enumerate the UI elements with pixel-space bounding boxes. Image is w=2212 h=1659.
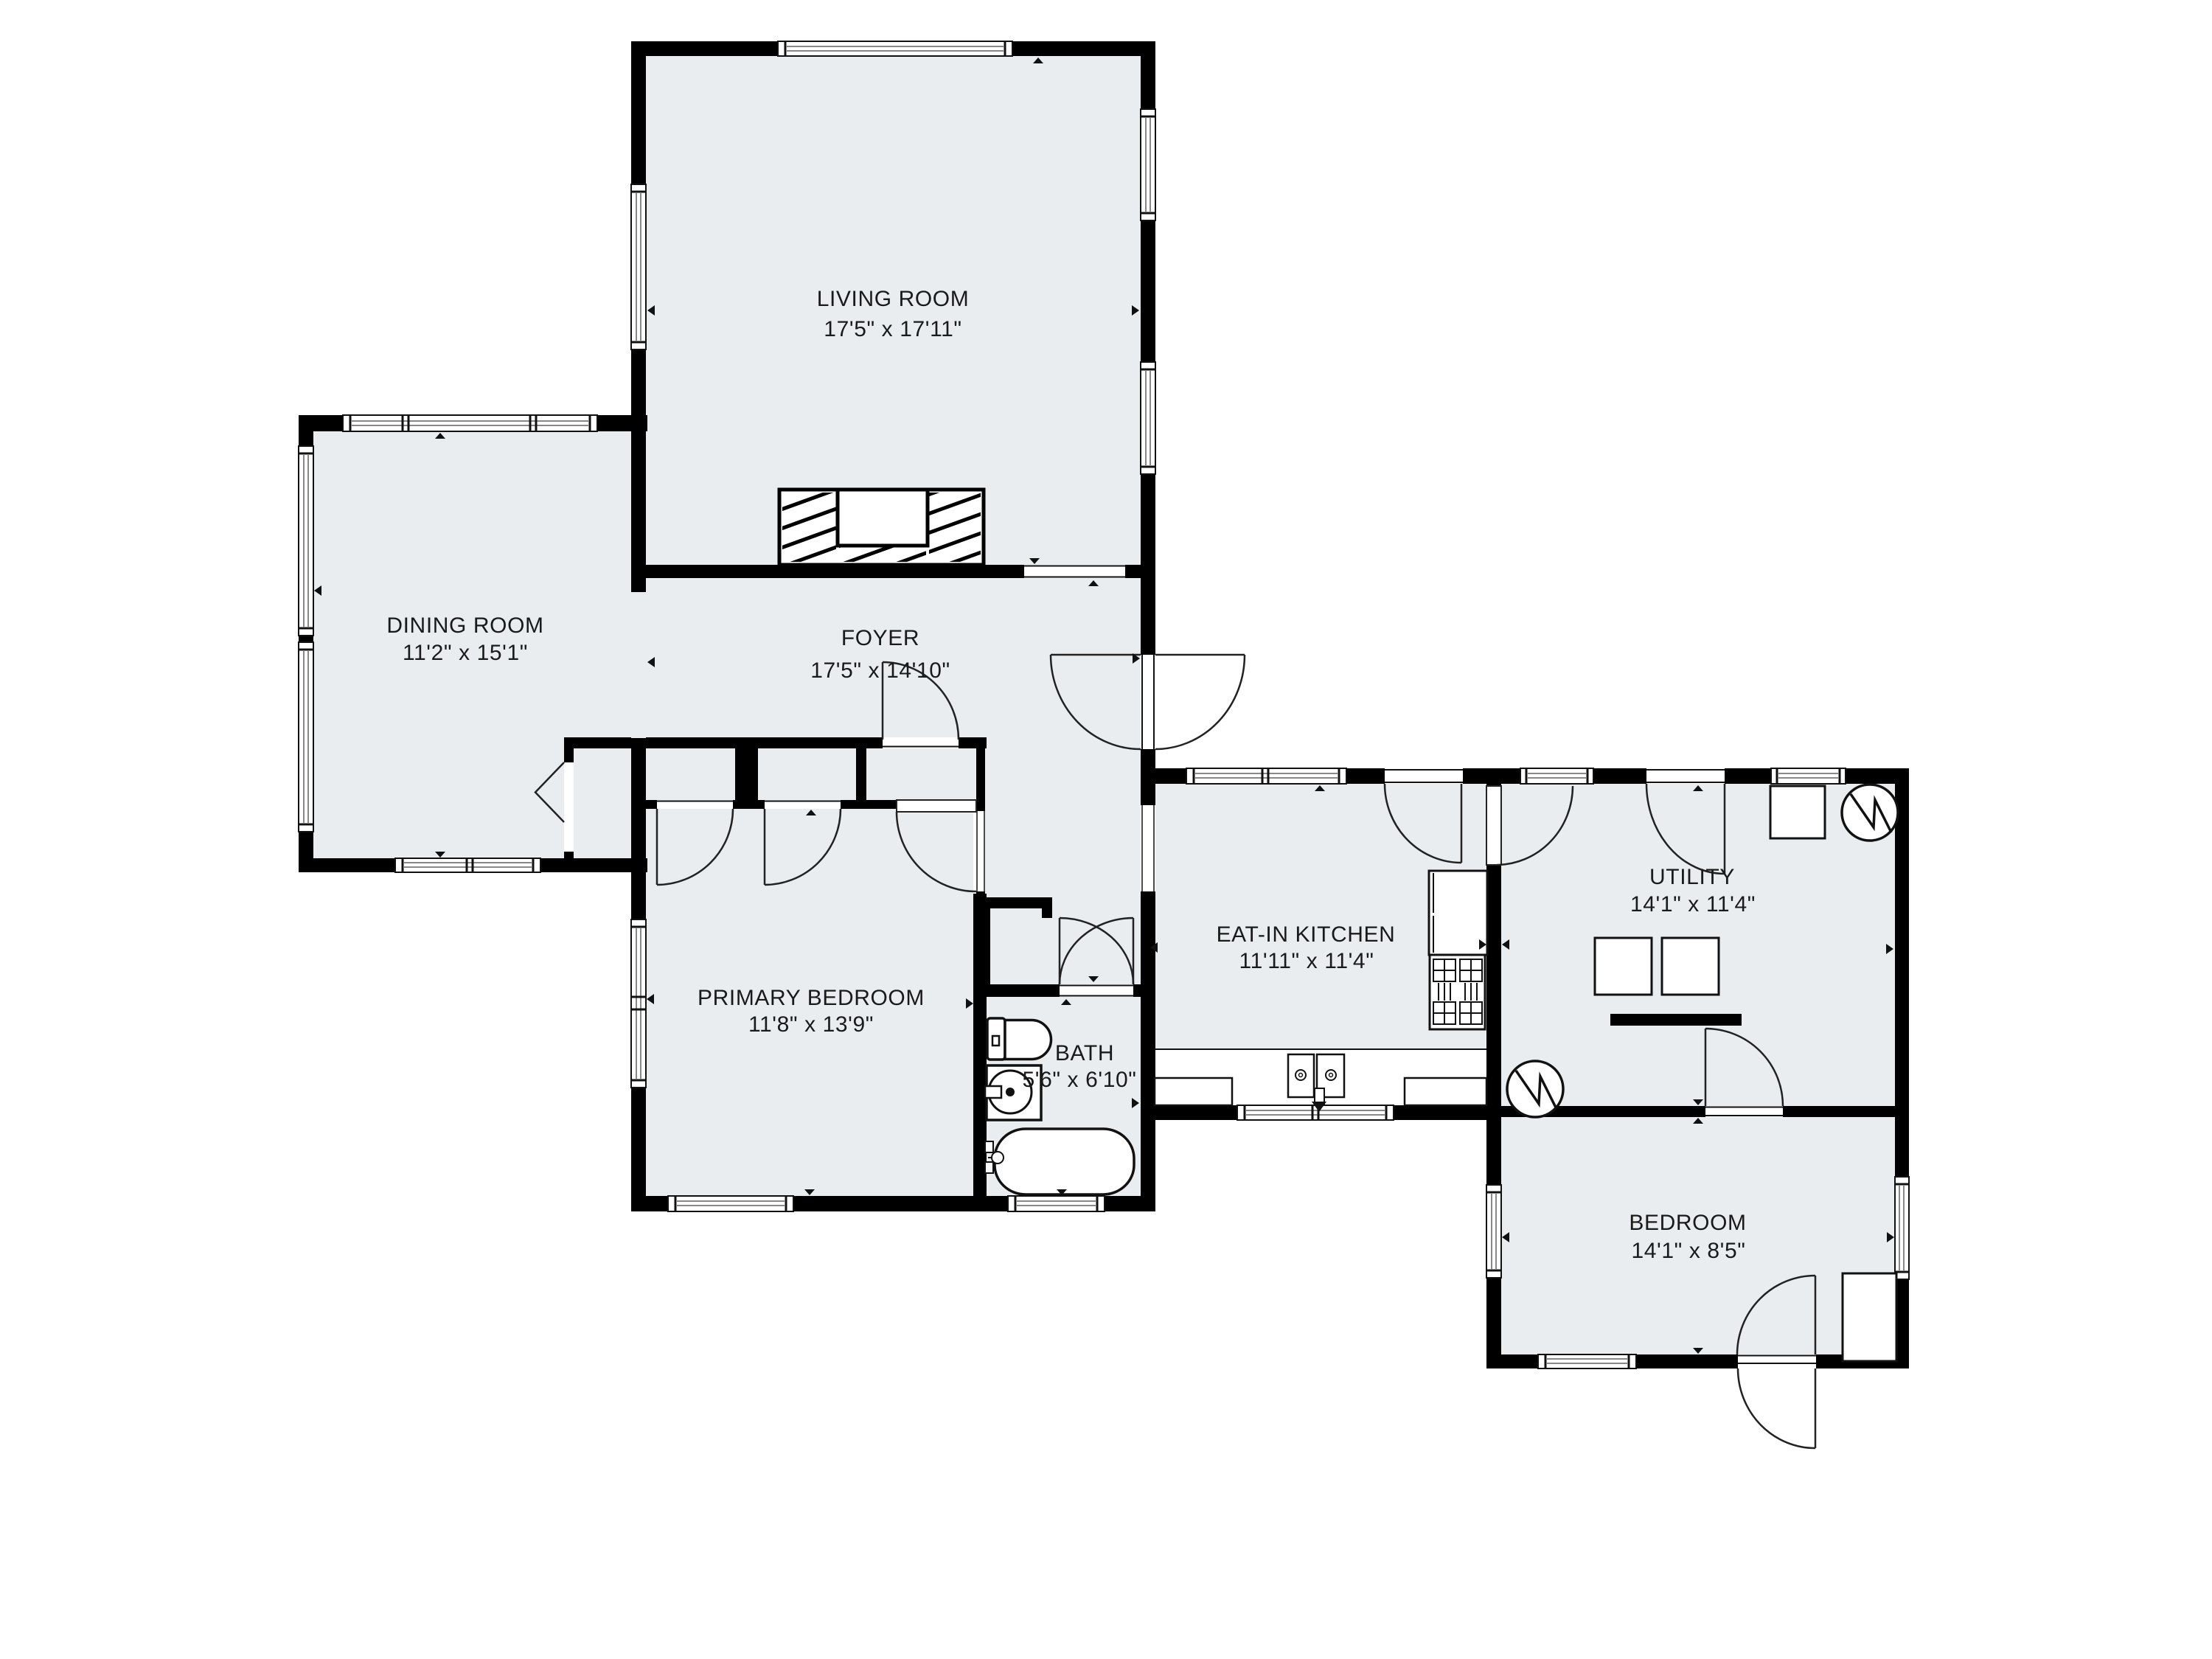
svg-text:UTILITY: UTILITY xyxy=(1649,865,1735,889)
svg-text:BATH: BATH xyxy=(1055,1041,1114,1065)
svg-text:LIVING ROOM: LIVING ROOM xyxy=(817,287,970,311)
svg-text:FOYER: FOYER xyxy=(841,626,919,650)
svg-text:11'2" x 15'1": 11'2" x 15'1" xyxy=(403,641,528,665)
svg-text:PRIMARY BEDROOM: PRIMARY BEDROOM xyxy=(698,986,925,1010)
svg-text:11'8" x 13'9": 11'8" x 13'9" xyxy=(748,1012,874,1037)
svg-text:14'1" x 8'5": 14'1" x 8'5" xyxy=(1631,1239,1745,1263)
svg-text:BEDROOM: BEDROOM xyxy=(1629,1211,1746,1235)
svg-text:17'5" x 14'10": 17'5" x 14'10" xyxy=(810,658,950,683)
svg-text:5'6" x 6'10": 5'6" x 6'10" xyxy=(1022,1068,1136,1092)
svg-text:17'5" x 17'11": 17'5" x 17'11" xyxy=(824,317,961,341)
svg-text:14'1" x 11'4": 14'1" x 11'4" xyxy=(1630,892,1756,917)
svg-text:EAT-IN KITCHEN: EAT-IN KITCHEN xyxy=(1217,922,1396,947)
svg-text:11'11" x 11'4": 11'11" x 11'4" xyxy=(1239,949,1374,973)
svg-text:DINING ROOM: DINING ROOM xyxy=(386,613,543,638)
